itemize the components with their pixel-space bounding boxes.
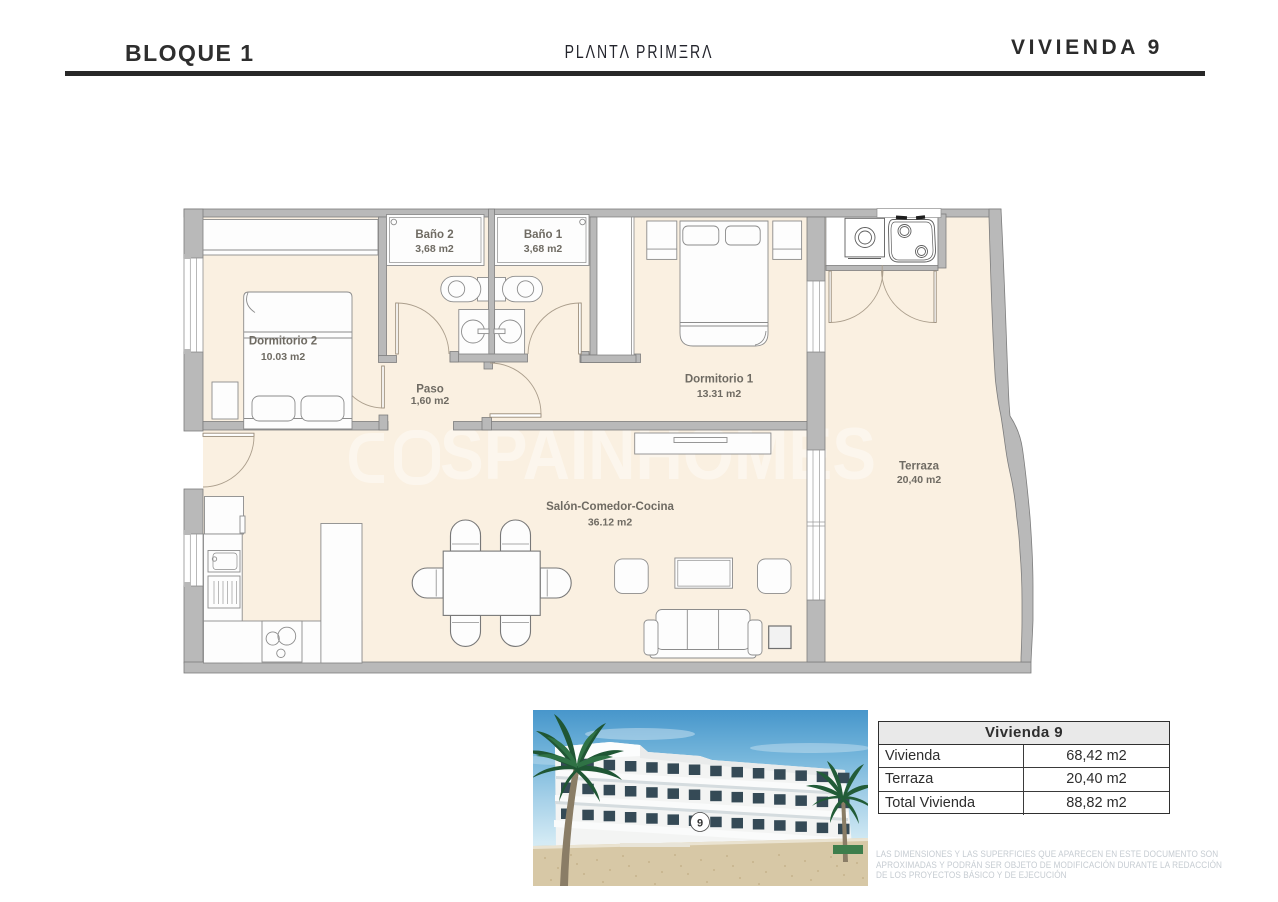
svg-text:3,68 m2: 3,68 m2 — [415, 243, 454, 255]
svg-text:Salón-Comedor-Cocina: Salón-Comedor-Cocina — [546, 501, 674, 513]
svg-text:Dormitorio 1: Dormitorio 1 — [685, 374, 754, 386]
svg-text:3,68 m2: 3,68 m2 — [524, 243, 563, 255]
svg-text:13.31 m2: 13.31 m2 — [697, 388, 742, 400]
svg-text:Baño 2: Baño 2 — [415, 229, 453, 241]
svg-text:Terraza: Terraza — [899, 461, 940, 473]
svg-text:36.12 m2: 36.12 m2 — [588, 517, 633, 529]
svg-text:Baño 1: Baño 1 — [524, 229, 563, 241]
svg-text:Dormitorio 2: Dormitorio 2 — [249, 336, 317, 348]
svg-text:10.03 m2: 10.03 m2 — [261, 351, 306, 363]
svg-text:9: 9 — [697, 818, 703, 830]
svg-text:Paso: Paso — [416, 384, 444, 396]
svg-text:20,40 m2: 20,40 m2 — [897, 474, 942, 486]
svg-text:1,60 m2: 1,60 m2 — [411, 395, 450, 407]
